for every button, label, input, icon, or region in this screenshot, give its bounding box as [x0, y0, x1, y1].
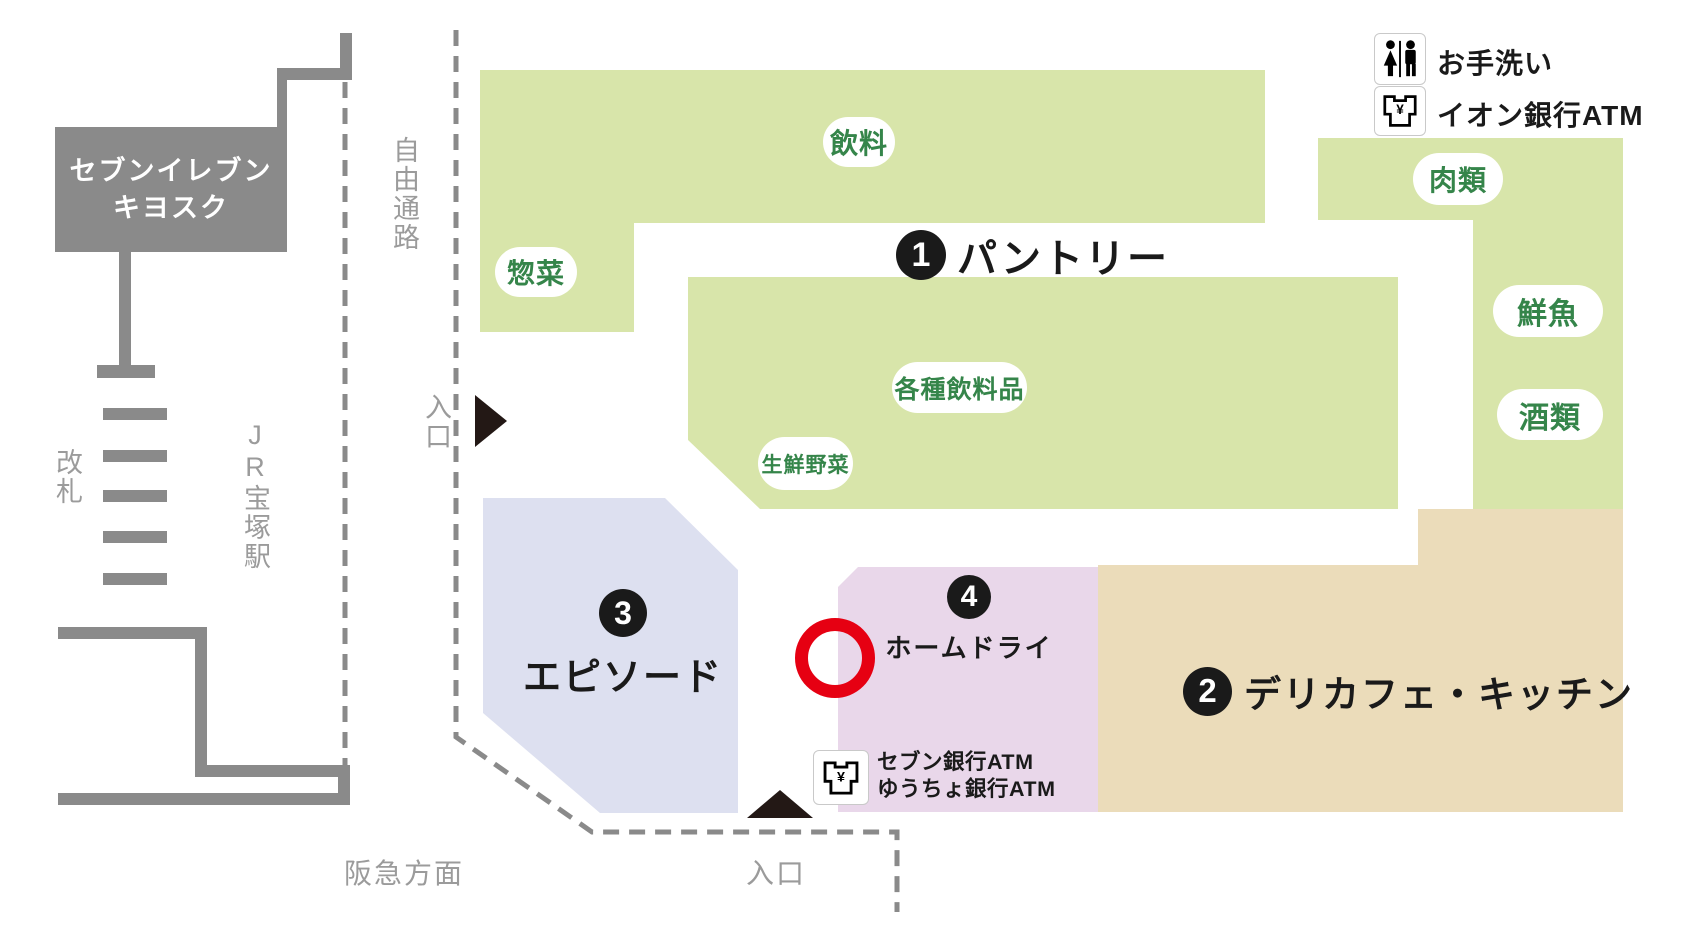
dept-pill-drinks: 飲料	[823, 117, 895, 167]
area-name-pantry: パントリー	[957, 226, 1169, 284]
restroom-label: お手洗い	[1437, 42, 1553, 82]
dept-pill-fresh-fish-label: 鮮魚	[1517, 289, 1579, 333]
svg-text:¥: ¥	[1396, 102, 1404, 117]
svg-text:¥: ¥	[837, 769, 845, 785]
dept-pill-deli: 惣菜	[495, 247, 577, 297]
entrance-south-arrow-icon	[747, 790, 813, 818]
dept-pill-liquor-label: 酒類	[1519, 393, 1581, 437]
dept-pill-fresh-vegetables-label: 生鮮野菜	[762, 449, 850, 479]
station-name-label: JR宝塚駅	[236, 420, 275, 571]
hankyu-direction-label: 阪急方面	[344, 852, 464, 892]
free-passage-label: 自由通路	[385, 136, 424, 252]
corner-atm-labels: セブン銀行ATM ゆうちょ銀行ATM	[877, 749, 1055, 803]
kiosk-stem-bar	[97, 365, 155, 378]
station-wall-top-horizontal	[277, 68, 352, 80]
area-title-episode: 3 エピソード	[540, 589, 706, 701]
corner-atm-label-line2: ゆうちょ銀行ATM	[877, 776, 1055, 803]
station-wall-lower-bottom	[58, 793, 350, 805]
corner-atm-icon: ¥	[813, 750, 869, 805]
ticket-gate-bar	[103, 531, 167, 543]
area-name-delicafe-kitchen: デリカフェ・キッチン	[1244, 664, 1634, 718]
area-number-episode: 3	[599, 589, 647, 637]
area-title-home-dry: 4 ホームドライ	[880, 575, 1058, 665]
area-number-pantry: 1	[896, 230, 946, 280]
floor-map: セブンイレブン キヨスク 改札 JR宝塚駅 自由通路 阪急方面 入口 入口 飲料…	[0, 0, 1690, 934]
aeon-atm-label: イオン銀行ATM	[1437, 94, 1644, 134]
current-location-marker	[795, 618, 875, 698]
entrance-west-arrow-icon	[475, 395, 507, 447]
dept-pill-fresh-fish: 鮮魚	[1493, 285, 1603, 337]
aeon-atm-icon: ¥	[1374, 86, 1426, 136]
ticket-gate-bar	[103, 490, 167, 502]
entrance-south-label: 入口	[746, 852, 806, 892]
ticket-gate-label: 改札	[48, 448, 87, 506]
kiosk-label-line2: キヨスク	[113, 190, 229, 226]
ticket-gate-bar	[103, 450, 167, 462]
ticket-gate-bar	[103, 408, 167, 420]
area-name-home-dry: ホームドライ	[885, 628, 1052, 665]
dept-pill-liquor: 酒類	[1497, 389, 1603, 440]
area-number-home-dry: 4	[947, 575, 991, 619]
station-wall-top-vertical	[277, 68, 287, 128]
dept-pill-various-beverages-label: 各種飲料品	[894, 370, 1024, 406]
area-name-episode: エピソード	[523, 646, 723, 701]
dept-pill-deli-label: 惣菜	[507, 252, 565, 292]
dept-pill-meat: 肉類	[1413, 153, 1503, 205]
kiosk-stem	[119, 252, 131, 366]
area-title-delicafe-kitchen: 2 デリカフェ・キッチン	[1183, 664, 1634, 718]
restroom-icon	[1374, 33, 1426, 85]
station-wall-lower-top	[58, 627, 207, 639]
dept-pill-meat-label: 肉類	[1429, 159, 1487, 199]
corner-atm-label-line1: セブン銀行ATM	[877, 749, 1055, 776]
dept-pill-fresh-vegetables: 生鮮野菜	[758, 437, 853, 490]
area-title-pantry: 1 パントリー	[896, 226, 1169, 284]
kiosk-box: セブンイレブン キヨスク	[55, 127, 287, 252]
area-number-delicafe-kitchen: 2	[1183, 667, 1232, 716]
dept-pill-drinks-label: 飲料	[830, 122, 888, 162]
station-wall-lower-vertical	[195, 627, 207, 777]
kiosk-label-line1: セブンイレブン	[70, 153, 273, 189]
ticket-gate-bar	[103, 573, 167, 585]
dept-pill-various-beverages: 各種飲料品	[892, 362, 1027, 413]
station-wall-lower-mid	[195, 765, 350, 777]
entrance-west-label: 入口	[417, 393, 456, 451]
